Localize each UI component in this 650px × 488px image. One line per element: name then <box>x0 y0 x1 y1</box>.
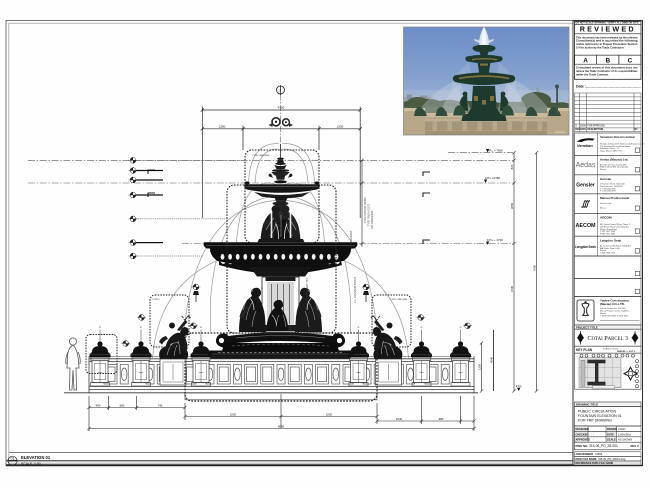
svg-text:FRP ORNAMENT TYP.: FRP ORNAMENT TYP. <box>306 277 309 302</box>
svg-text:740: 740 <box>158 403 163 407</box>
svg-text:SCALE 1:17,500: SCALE 1:17,500 <box>603 347 619 350</box>
svg-text:AECOM: AECOM <box>575 223 596 229</box>
svg-text:F.P.L +6780: F.P.L +6780 <box>485 176 500 180</box>
svg-text:9050: 9050 <box>278 424 285 428</box>
svg-text:C: C <box>628 58 633 65</box>
svg-text:31505: 31505 <box>595 452 603 456</box>
svg-text:Gensler: Gensler <box>600 177 612 181</box>
svg-text:FRP ORNAMENT: FRP ORNAMENT <box>371 210 374 230</box>
svg-text:Venetian: Venetian <box>577 144 593 148</box>
svg-text:ELEVATION 01: ELEVATION 01 <box>21 455 51 460</box>
svg-text:F 852 2317 7609: F 852 2317 7609 <box>600 233 616 235</box>
svg-text:TYPE 2 BRONZE: TYPE 2 BRONZE <box>390 299 408 301</box>
svg-text:F.P.L + 4730: F.P.L + 4730 <box>487 238 503 242</box>
svg-text:1250: 1250 <box>219 124 226 128</box>
svg-text:SCALE 1:50: SCALE 1:50 <box>21 462 41 466</box>
svg-text:AS SHOWN: AS SHOWN <box>618 438 632 442</box>
svg-text:under the Trade Contract.: under the Trade Contract. <box>576 72 609 76</box>
svg-text:This document has been reviewe: This document has been reviewed by the r… <box>576 35 638 39</box>
svg-text:(Macau) CO.,LTD.: (Macau) CO.,LTD. <box>600 302 625 306</box>
svg-text:DESCRIPTION: DESCRIPTION <box>588 129 604 131</box>
svg-text:-: - <box>593 433 594 436</box>
svg-text:Macau: Macau <box>600 208 606 210</box>
svg-text:COTAI PARCEL 3: COTAI PARCEL 3 <box>587 335 628 342</box>
svg-text:1: 1 <box>280 89 282 93</box>
svg-text:TYPE 1 BRONZE: TYPE 1 BRONZE <box>252 155 270 157</box>
svg-text:315-06_PD_00001.dwg: 315-06_PD_00001.dwg <box>598 457 626 461</box>
svg-text:FOR APPROVAL: FOR APPROVAL <box>588 125 606 128</box>
svg-text:BY: BY <box>635 129 639 131</box>
svg-text:5.4 for action by the Tra: 5.4 for action by the Trade Contractor. <box>576 46 625 50</box>
svg-text:Venetian Orient Limited: Venetian Orient Limited <box>600 135 635 139</box>
svg-text:A: A <box>583 58 588 65</box>
svg-text:01: 01 <box>11 457 15 461</box>
svg-text:FOUNTAIN ELEVATION 01: FOUNTAIN ELEVATION 01 <box>578 414 622 418</box>
svg-text:2250: 2250 <box>326 412 333 416</box>
svg-text:580: 580 <box>120 403 125 407</box>
svg-text:Langdon Seah: Langdon Seah <box>600 238 621 242</box>
svg-text:PUBLIC CIRCULATION: PUBLIC CIRCULATION <box>578 409 616 413</box>
svg-text:F.P.L + 7600: F.P.L + 7600 <box>487 149 503 153</box>
svg-text:PARCEL 1, LOT 3: PARCEL 1, LOT 3 <box>617 350 636 353</box>
svg-text:3050: 3050 <box>510 202 514 209</box>
svg-text:FOR FRP DRAWING: FOR FRP DRAWING <box>578 419 612 423</box>
svg-text:Aedas: Aedas <box>576 162 596 169</box>
svg-text:Date :: Date : <box>576 85 586 89</box>
svg-text:KEY PLAN: KEY PLAN <box>576 348 593 352</box>
svg-text:-: - <box>593 439 594 442</box>
svg-text:AECOM: AECOM <box>600 216 612 220</box>
svg-text:12/04/2016: 12/04/2016 <box>618 432 632 436</box>
svg-text:APPROVED: APPROVED <box>576 438 591 442</box>
svg-text:2250: 2250 <box>230 412 237 416</box>
svg-text:820: 820 <box>510 164 514 169</box>
svg-text:1640: 1640 <box>396 417 403 421</box>
svg-text:Taipa, Macao SAR, P.R.C.: Taipa, Macao SAR, P.R.C. <box>600 150 624 153</box>
svg-text:Consultant(s) and is accord: Consultant(s) and is accorded the follow… <box>576 39 638 43</box>
svg-text:7600: 7600 <box>533 264 537 271</box>
svg-text:©photogr.: ©photogr. <box>555 130 567 134</box>
svg-text:F 1 415.836.4599: F 1 415.836.4599 <box>600 191 617 193</box>
svg-text:REVIEWED: REVIEWED <box>580 25 636 34</box>
svg-text:DATE: DATE <box>580 128 587 131</box>
svg-text:REV 0: REV 0 <box>631 444 640 448</box>
svg-text:DRAWN: DRAWN <box>607 427 617 431</box>
svg-text:CHECKED: CHECKED <box>576 432 589 436</box>
svg-text:Consultant review of this: Consultant review of this document does … <box>576 66 638 70</box>
svg-text:1350: 1350 <box>477 363 481 370</box>
svg-text:4100: 4100 <box>278 106 285 110</box>
svg-text:Gensler: Gensler <box>576 182 595 188</box>
svg-text:Aedas (Macau) Ltd.: Aedas (Macau) Ltd. <box>600 158 629 162</box>
svg-text:C.L. FOUNTAIN SPOUT: C.L. FOUNTAIN SPOUT <box>354 276 357 303</box>
svg-text:JOB NUMBER: JOB NUMBER <box>576 452 594 456</box>
svg-text:TOP ORNAMENT: TOP ORNAMENT <box>350 230 353 250</box>
svg-text:DWG NO.: DWG NO. <box>576 444 589 448</box>
svg-text:PROJECT TITLE: PROJECT TITLE <box>576 325 598 329</box>
svg-text:10/04: 10/04 <box>580 126 586 128</box>
svg-text:315-06_PD_28-001: 315-06_PD_28-001 <box>589 444 618 448</box>
svg-text:Macau Professional: Macau Professional <box>600 196 629 200</box>
svg-text:DESIGNED: DESIGNED <box>576 427 590 431</box>
svg-text:980: 980 <box>439 417 444 421</box>
svg-text:Macau: Macau <box>600 169 606 171</box>
svg-text:F.F.L: F.F.L <box>516 384 522 388</box>
svg-text:relieve the Trade Contractor: relieve the Trade Contractor of its resp… <box>576 69 638 73</box>
svg-text:B: B <box>605 58 610 65</box>
svg-text:4040: 4040 <box>489 356 493 363</box>
svg-text:DATE: DATE <box>607 432 614 436</box>
svg-text:T 853 2833 1710: T 853 2833 1710 <box>600 252 616 254</box>
svg-text:REFERENCE DWG FILE NAME: REFERENCE DWG FILE NAME <box>576 461 614 465</box>
svg-text:SCALE: SCALE <box>607 438 616 442</box>
svg-text:status referred to in Proje: status referred to in Project Procedure … <box>576 42 638 46</box>
svg-text:400: 400 <box>96 403 101 407</box>
svg-text:4730: 4730 <box>510 285 514 292</box>
svg-text:DWG FILE NAME: DWG FILE NAME <box>576 457 597 461</box>
svg-text:1250: 1250 <box>337 124 344 128</box>
svg-text:Langdon Seah: Langdon Seah <box>575 245 596 249</box>
svg-text:CHAD: CHAD <box>618 427 625 431</box>
svg-text:T (853) 2870 1811 F 2870 1822: T (853) 2870 1811 F 2870 1822 <box>600 316 629 318</box>
svg-text:TYPE 2: TYPE 2 <box>152 299 160 301</box>
svg-text:DRAWING TITLE: DRAWING TITLE <box>576 403 598 407</box>
svg-text:Services Ltd.: Services Ltd. <box>600 202 612 205</box>
